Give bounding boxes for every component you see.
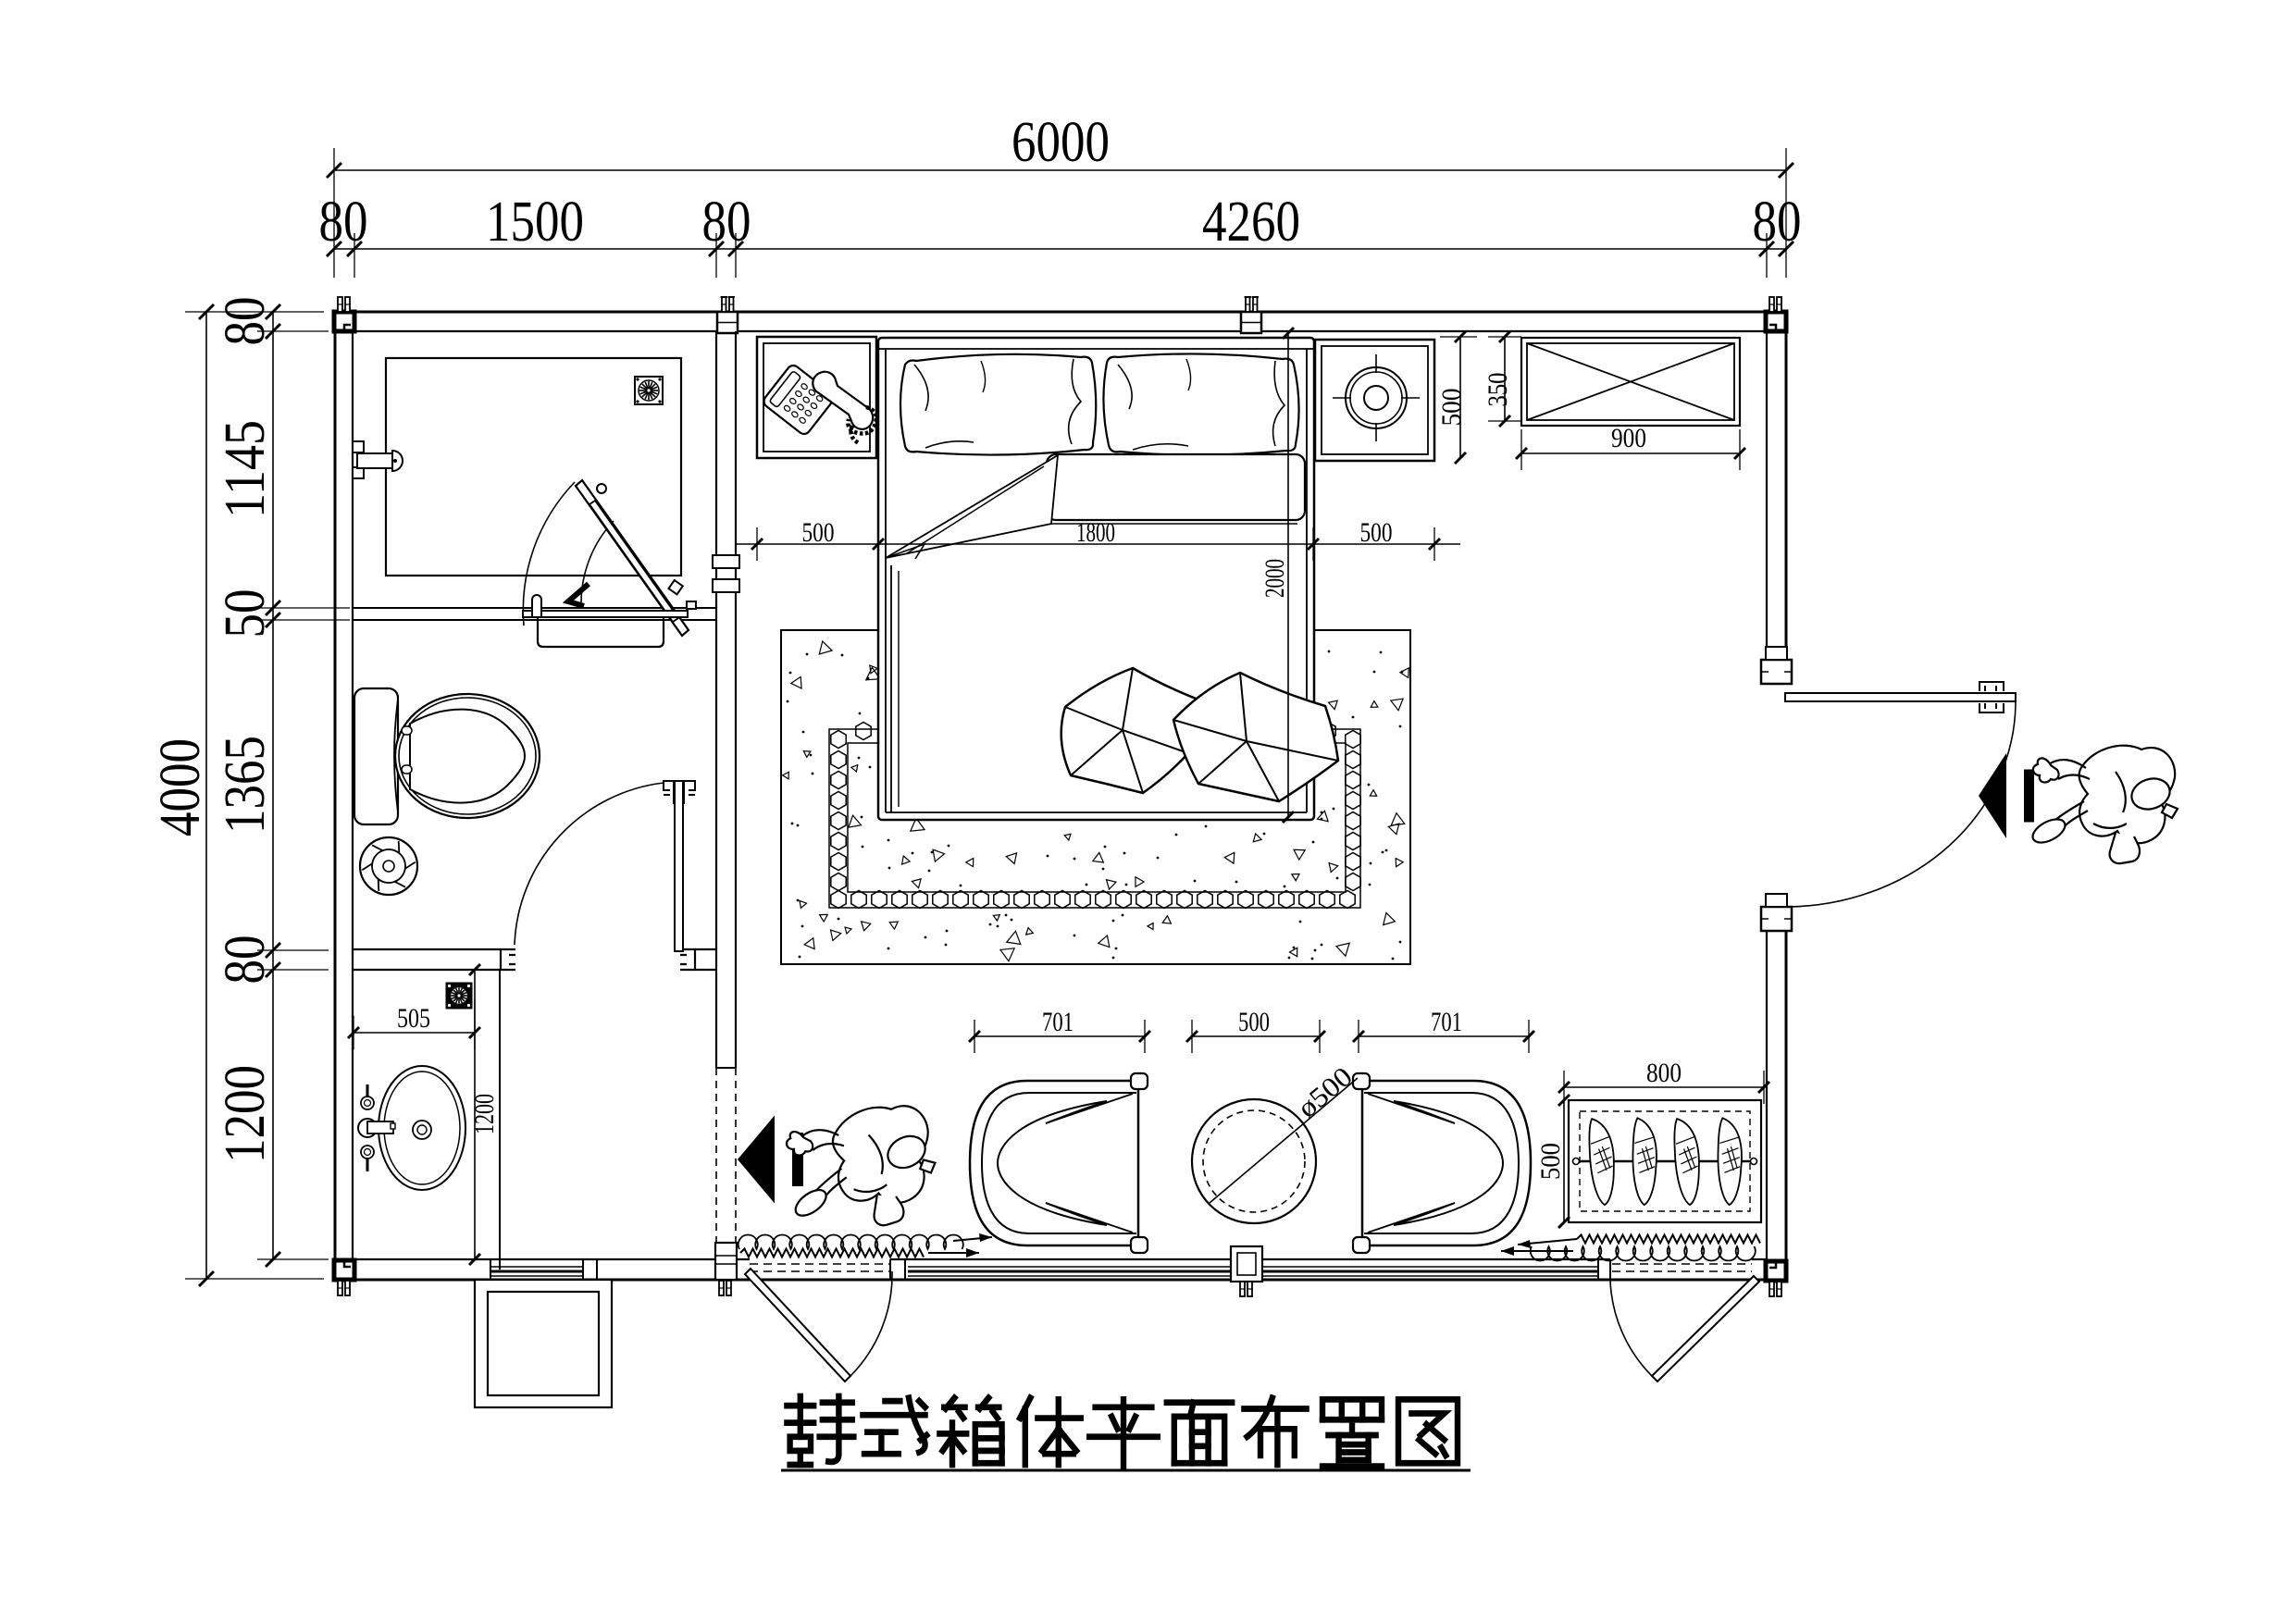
svg-text:80: 80: [214, 297, 277, 346]
svg-text:80: 80: [702, 191, 751, 254]
svg-text:500: 500: [1360, 517, 1393, 548]
svg-text:350: 350: [1483, 373, 1513, 407]
svg-text:1365: 1365: [214, 736, 277, 834]
svg-text:500: 500: [802, 517, 835, 548]
svg-text:500: 500: [1436, 389, 1467, 427]
svg-text:1200: 1200: [469, 1094, 500, 1134]
svg-text:701: 701: [1042, 1007, 1074, 1037]
svg-text:50: 50: [214, 589, 277, 638]
svg-text:505: 505: [397, 1003, 430, 1034]
svg-text:80: 80: [319, 191, 368, 254]
svg-text:800: 800: [1646, 1058, 1682, 1088]
svg-text:1145: 1145: [214, 420, 277, 518]
svg-text:500: 500: [1535, 1143, 1566, 1180]
svg-text:1800: 1800: [1076, 517, 1115, 548]
svg-text:500: 500: [1238, 1007, 1270, 1037]
svg-text:4000: 4000: [149, 738, 212, 836]
svg-text:6000: 6000: [1011, 111, 1110, 174]
svg-text:900: 900: [1611, 423, 1646, 453]
svg-text:1200: 1200: [214, 1065, 277, 1163]
svg-text:4260: 4260: [1202, 191, 1300, 254]
svg-text:701: 701: [1431, 1007, 1462, 1037]
svg-text:1500: 1500: [486, 191, 584, 254]
svg-text:80: 80: [214, 935, 277, 985]
svg-text:2000: 2000: [1260, 559, 1290, 598]
svg-text:80: 80: [1753, 191, 1802, 254]
